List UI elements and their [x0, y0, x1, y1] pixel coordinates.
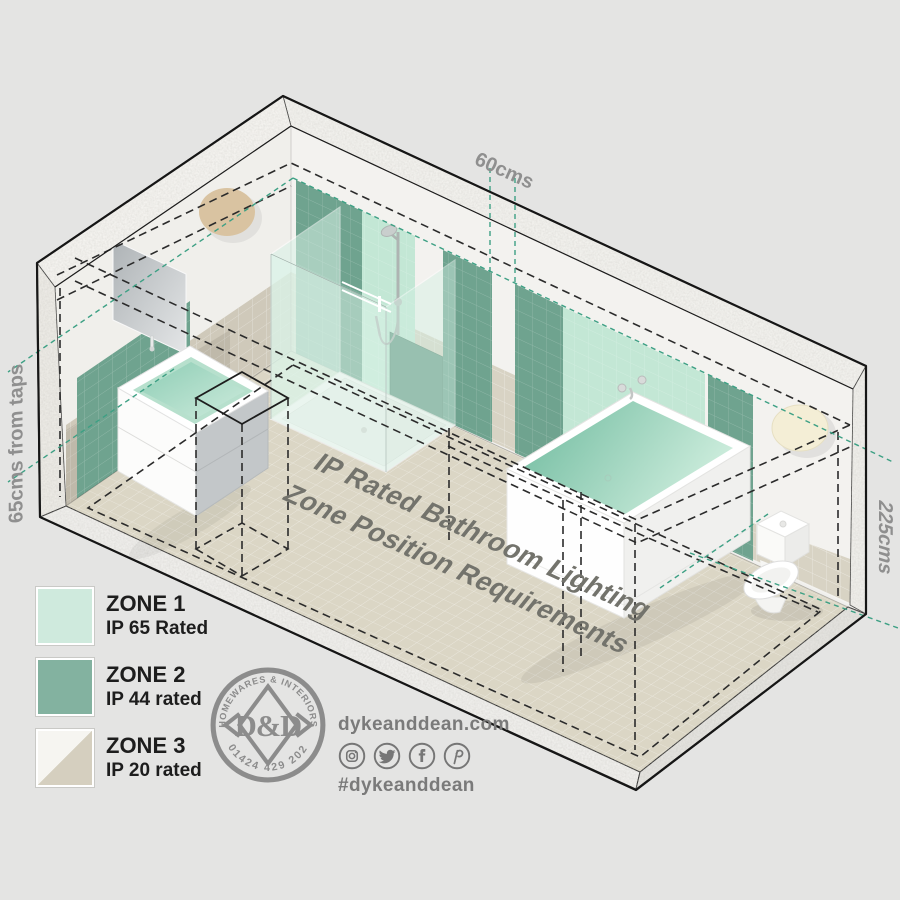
legend-item-zone1: ZONE 1 IP 65 Rated: [36, 588, 306, 644]
facebook-icon: [408, 742, 436, 770]
zone2-name: ZONE 2: [106, 662, 202, 688]
social-icons-row: [338, 742, 510, 770]
zone2-rating: IP 44 rated: [106, 689, 202, 712]
zone3-swatch: [36, 729, 94, 787]
dimension-label-225cms: 225cms: [873, 464, 896, 611]
shower-door-handle: [378, 296, 381, 312]
zone3-rating: IP 20 rated: [106, 760, 202, 783]
stamp-monogram: D&D: [235, 709, 301, 743]
zone1-rating: IP 65 Rated: [106, 618, 208, 641]
zone2-swatch: [36, 658, 94, 716]
infographic-canvas: 60cms 65cms from taps 225cms IP Rated Ba…: [0, 0, 900, 900]
zone1-swatch: [36, 587, 94, 645]
round-wall-light-left: [199, 188, 255, 236]
zone1-name: ZONE 1: [106, 591, 208, 617]
brand-stamp: HOMEWARES & INTERIORS 01424 429 202 D&D: [207, 664, 329, 786]
dimension-label-65cms-from-taps: 65cms from taps: [6, 317, 29, 569]
round-wall-light-right: [772, 405, 828, 451]
zone3-name: ZONE 3: [106, 733, 202, 759]
hashtag-text: #dykeanddean: [338, 775, 510, 797]
instagram-icon: [338, 742, 366, 770]
social-block: dykeanddean.com #dykeanddean: [338, 714, 510, 797]
pinterest-icon: [443, 742, 471, 770]
website-text: dykeanddean.com: [338, 714, 510, 736]
twitter-icon: [373, 742, 401, 770]
